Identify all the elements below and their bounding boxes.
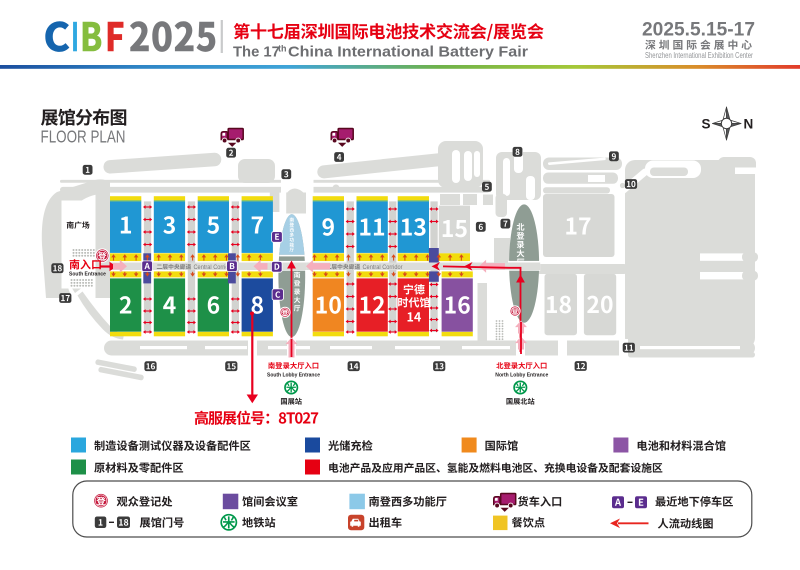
svg-text:South Lobby Entrance: South Lobby Entrance — [267, 373, 320, 379]
svg-text:Central Corridor: Central Corridor — [363, 264, 404, 271]
svg-text:2025.5.15-17: 2025.5.15-17 — [642, 18, 755, 40]
svg-text:S: S — [701, 117, 710, 132]
svg-text:South Entrance: South Entrance — [69, 271, 106, 277]
svg-text:The 17: The 17 — [233, 45, 280, 61]
svg-text:N: N — [744, 117, 754, 132]
svg-text:Shenzhen International Exhibit: Shenzhen International Exhibition Center — [645, 50, 753, 60]
svg-text:China International Battery Fa: China International Battery Fair — [288, 45, 528, 61]
svg-text:North Lobby Entrance: North Lobby Entrance — [495, 373, 548, 379]
svg-text:th: th — [278, 44, 287, 54]
svg-text:FLOOR PLAN: FLOOR PLAN — [41, 127, 126, 147]
